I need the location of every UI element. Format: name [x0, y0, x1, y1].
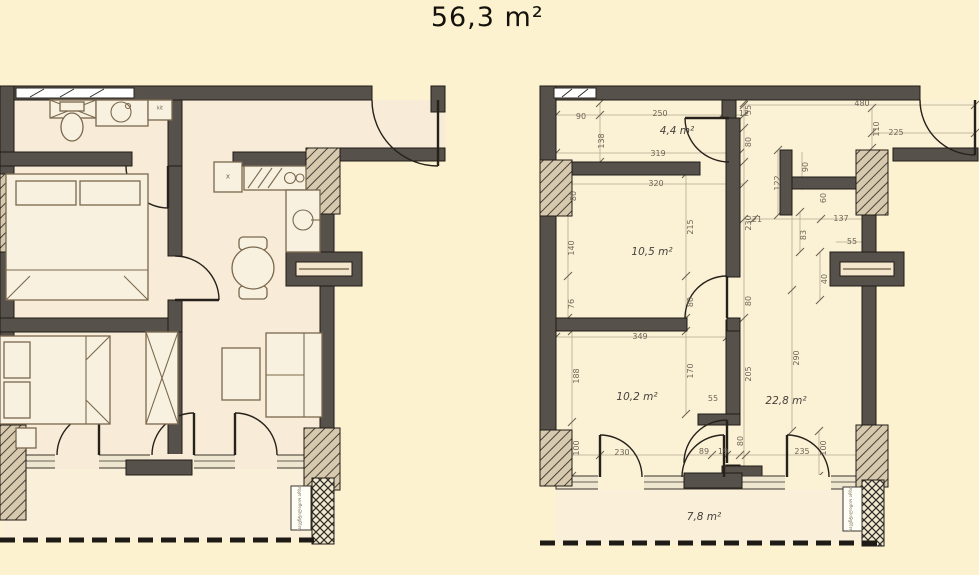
wardrobe-icon: [146, 332, 178, 424]
shaft-label: სავენტილაციო არხი: [299, 486, 304, 530]
floor-plan-canvas: [0, 0, 979, 575]
dimension-label: 80: [745, 296, 753, 306]
toilet-icon: [60, 102, 84, 141]
area-bedroom-2: 10,2 m²: [616, 392, 657, 403]
dimension-label: 55: [745, 105, 753, 115]
dimension-label: 55: [847, 238, 857, 246]
dimension-label: 90: [802, 162, 810, 172]
coffee-table-icon: [222, 348, 260, 400]
dimension-label: 40: [821, 274, 829, 284]
dimension-label: 319: [650, 150, 665, 158]
washing-machine-icon: [96, 100, 148, 126]
floor-plan-page: 56,3 m²: [0, 0, 979, 575]
dimension-label: 250: [652, 110, 667, 118]
dimension-label: 80: [745, 137, 753, 147]
dimension-label: 19: [718, 448, 728, 456]
dimension-label: 235: [794, 448, 809, 456]
dimension-label: 80: [687, 297, 695, 307]
dimension-label: 137: [833, 215, 848, 223]
dimension-label: 290: [793, 350, 801, 365]
dimension-label: 60: [820, 193, 828, 203]
dimension-label: 89: [699, 448, 709, 456]
dimension-label: 83: [800, 230, 808, 240]
dimension-label: 80: [737, 436, 745, 446]
dimension-label: 225: [888, 129, 903, 137]
area-bedroom-1: 10,5 m²: [631, 247, 672, 258]
dimension-label: 100: [573, 440, 581, 455]
left-floor-plan: [0, 86, 445, 544]
area-living: 22,8 m²: [765, 396, 806, 407]
dimension-label: 55: [708, 395, 718, 403]
dimension-label: 480: [854, 100, 869, 108]
dimension-label: 349: [632, 333, 647, 341]
sofa-icon: [266, 333, 322, 417]
dimension-label: 80: [570, 191, 578, 201]
dimension-label: 320: [648, 180, 663, 188]
double-bed-icon: [0, 336, 110, 424]
nightstand-icon: [16, 428, 36, 448]
dimension-label: 90: [576, 113, 586, 121]
dimension-label: 170: [687, 363, 695, 378]
area-hall: 4,4 m²: [660, 126, 694, 137]
shaft-label: სავენტილაციო არხი: [850, 487, 855, 531]
double-bed-icon: [6, 174, 148, 300]
dimension-label: 230: [614, 449, 629, 457]
dimension-label: 205: [745, 366, 753, 381]
dimension-label: 122: [774, 175, 782, 190]
area-balcony: 7,8 m²: [687, 512, 721, 523]
dimension-label: 21: [752, 216, 762, 224]
dimension-label: 215: [687, 219, 695, 234]
dimension-label: 188: [573, 368, 581, 383]
dimension-label: 100: [820, 440, 828, 455]
dimension-label: 138: [598, 133, 606, 148]
fridge-x-label: x: [226, 174, 230, 181]
dimension-label: 76: [568, 299, 576, 309]
dimension-label: 140: [568, 240, 576, 255]
boiler-label: kit: [157, 107, 163, 112]
right-floor-plan: [540, 86, 979, 546]
dimension-label: 110: [873, 121, 881, 136]
